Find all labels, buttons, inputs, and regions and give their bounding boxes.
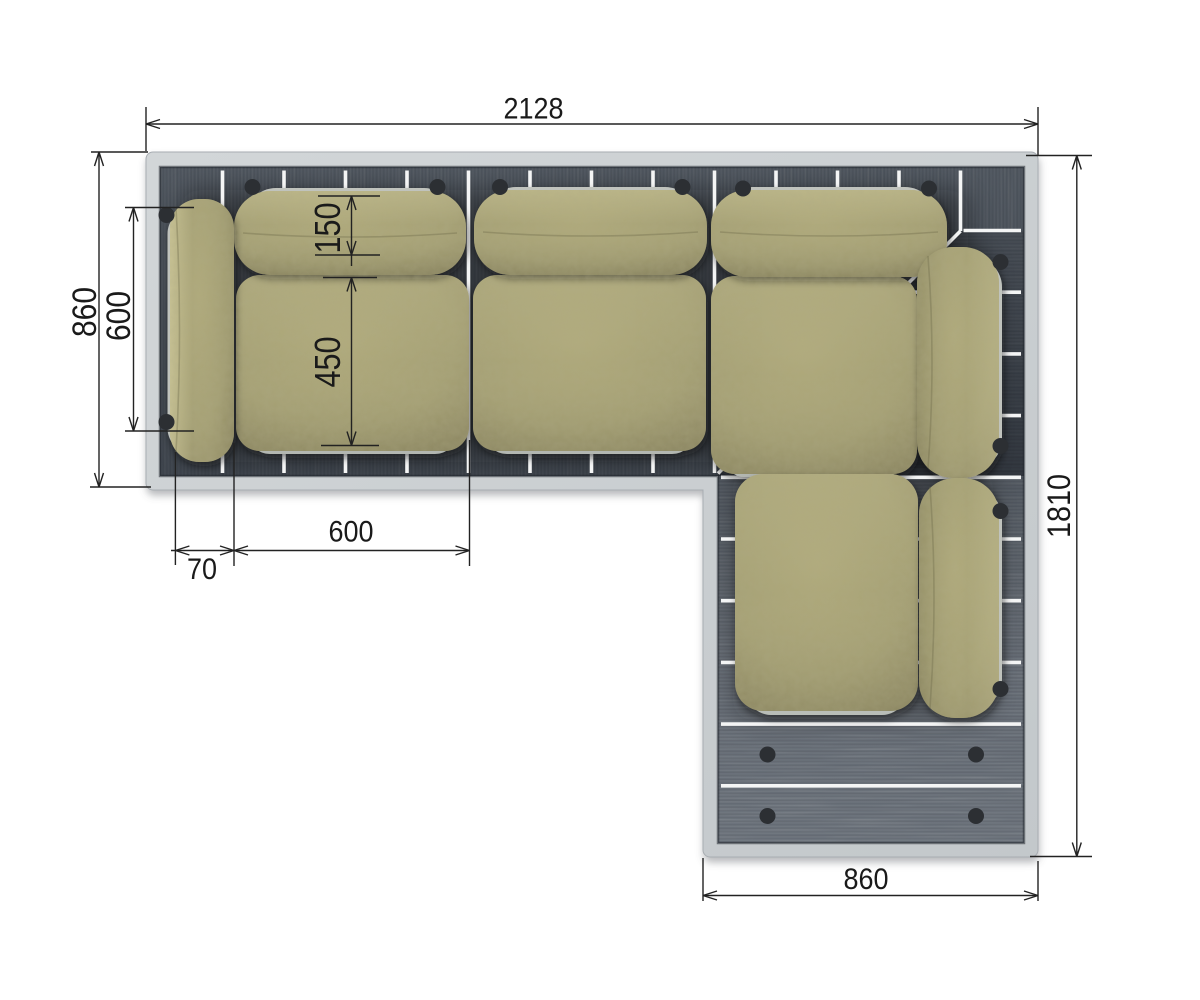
svg-text:600: 600 [328, 515, 373, 549]
svg-text:450: 450 [309, 336, 349, 387]
svg-text:150: 150 [309, 202, 349, 253]
svg-text:600: 600 [99, 291, 137, 341]
svg-text:1810: 1810 [1042, 474, 1078, 538]
svg-text:860: 860 [843, 863, 888, 897]
svg-text:860: 860 [65, 287, 103, 337]
svg-text:70: 70 [187, 553, 217, 587]
svg-text:2128: 2128 [503, 92, 563, 126]
